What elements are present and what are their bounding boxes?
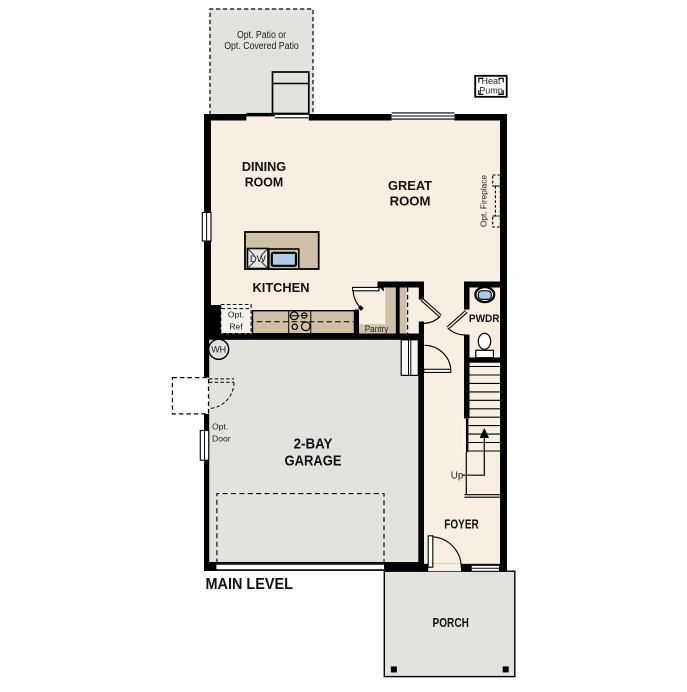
svg-text:Opt. Covered Patio: Opt. Covered Patio <box>224 41 299 52</box>
svg-text:Opt. Patio or: Opt. Patio or <box>237 30 287 41</box>
svg-text:ROOM: ROOM <box>245 175 284 190</box>
svg-text:Door: Door <box>212 434 231 444</box>
svg-text:Pantry: Pantry <box>365 324 389 334</box>
svg-text:PWDR: PWDR <box>469 313 500 325</box>
svg-text:Ref: Ref <box>229 322 243 332</box>
svg-text:2-BAY: 2-BAY <box>294 436 333 453</box>
svg-text:FOYER: FOYER <box>444 517 479 532</box>
svg-text:GARAGE: GARAGE <box>285 453 342 470</box>
svg-text:DINING: DINING <box>242 159 286 174</box>
svg-text:DW: DW <box>250 254 266 265</box>
svg-text:KITCHEN: KITCHEN <box>253 280 310 295</box>
svg-text:MAIN LEVEL: MAIN LEVEL <box>206 576 293 593</box>
svg-text:GREAT: GREAT <box>388 178 432 193</box>
svg-text:Opt.: Opt. <box>228 310 244 320</box>
svg-text:Opt. Fireplace: Opt. Fireplace <box>479 175 489 227</box>
svg-text:PORCH: PORCH <box>433 616 469 630</box>
svg-text:Opt.: Opt. <box>212 422 228 432</box>
svg-text:ROOM: ROOM <box>390 194 431 209</box>
svg-text:WH: WH <box>211 345 226 355</box>
svg-text:Pump: Pump <box>479 86 503 96</box>
svg-text:Up: Up <box>451 471 464 482</box>
